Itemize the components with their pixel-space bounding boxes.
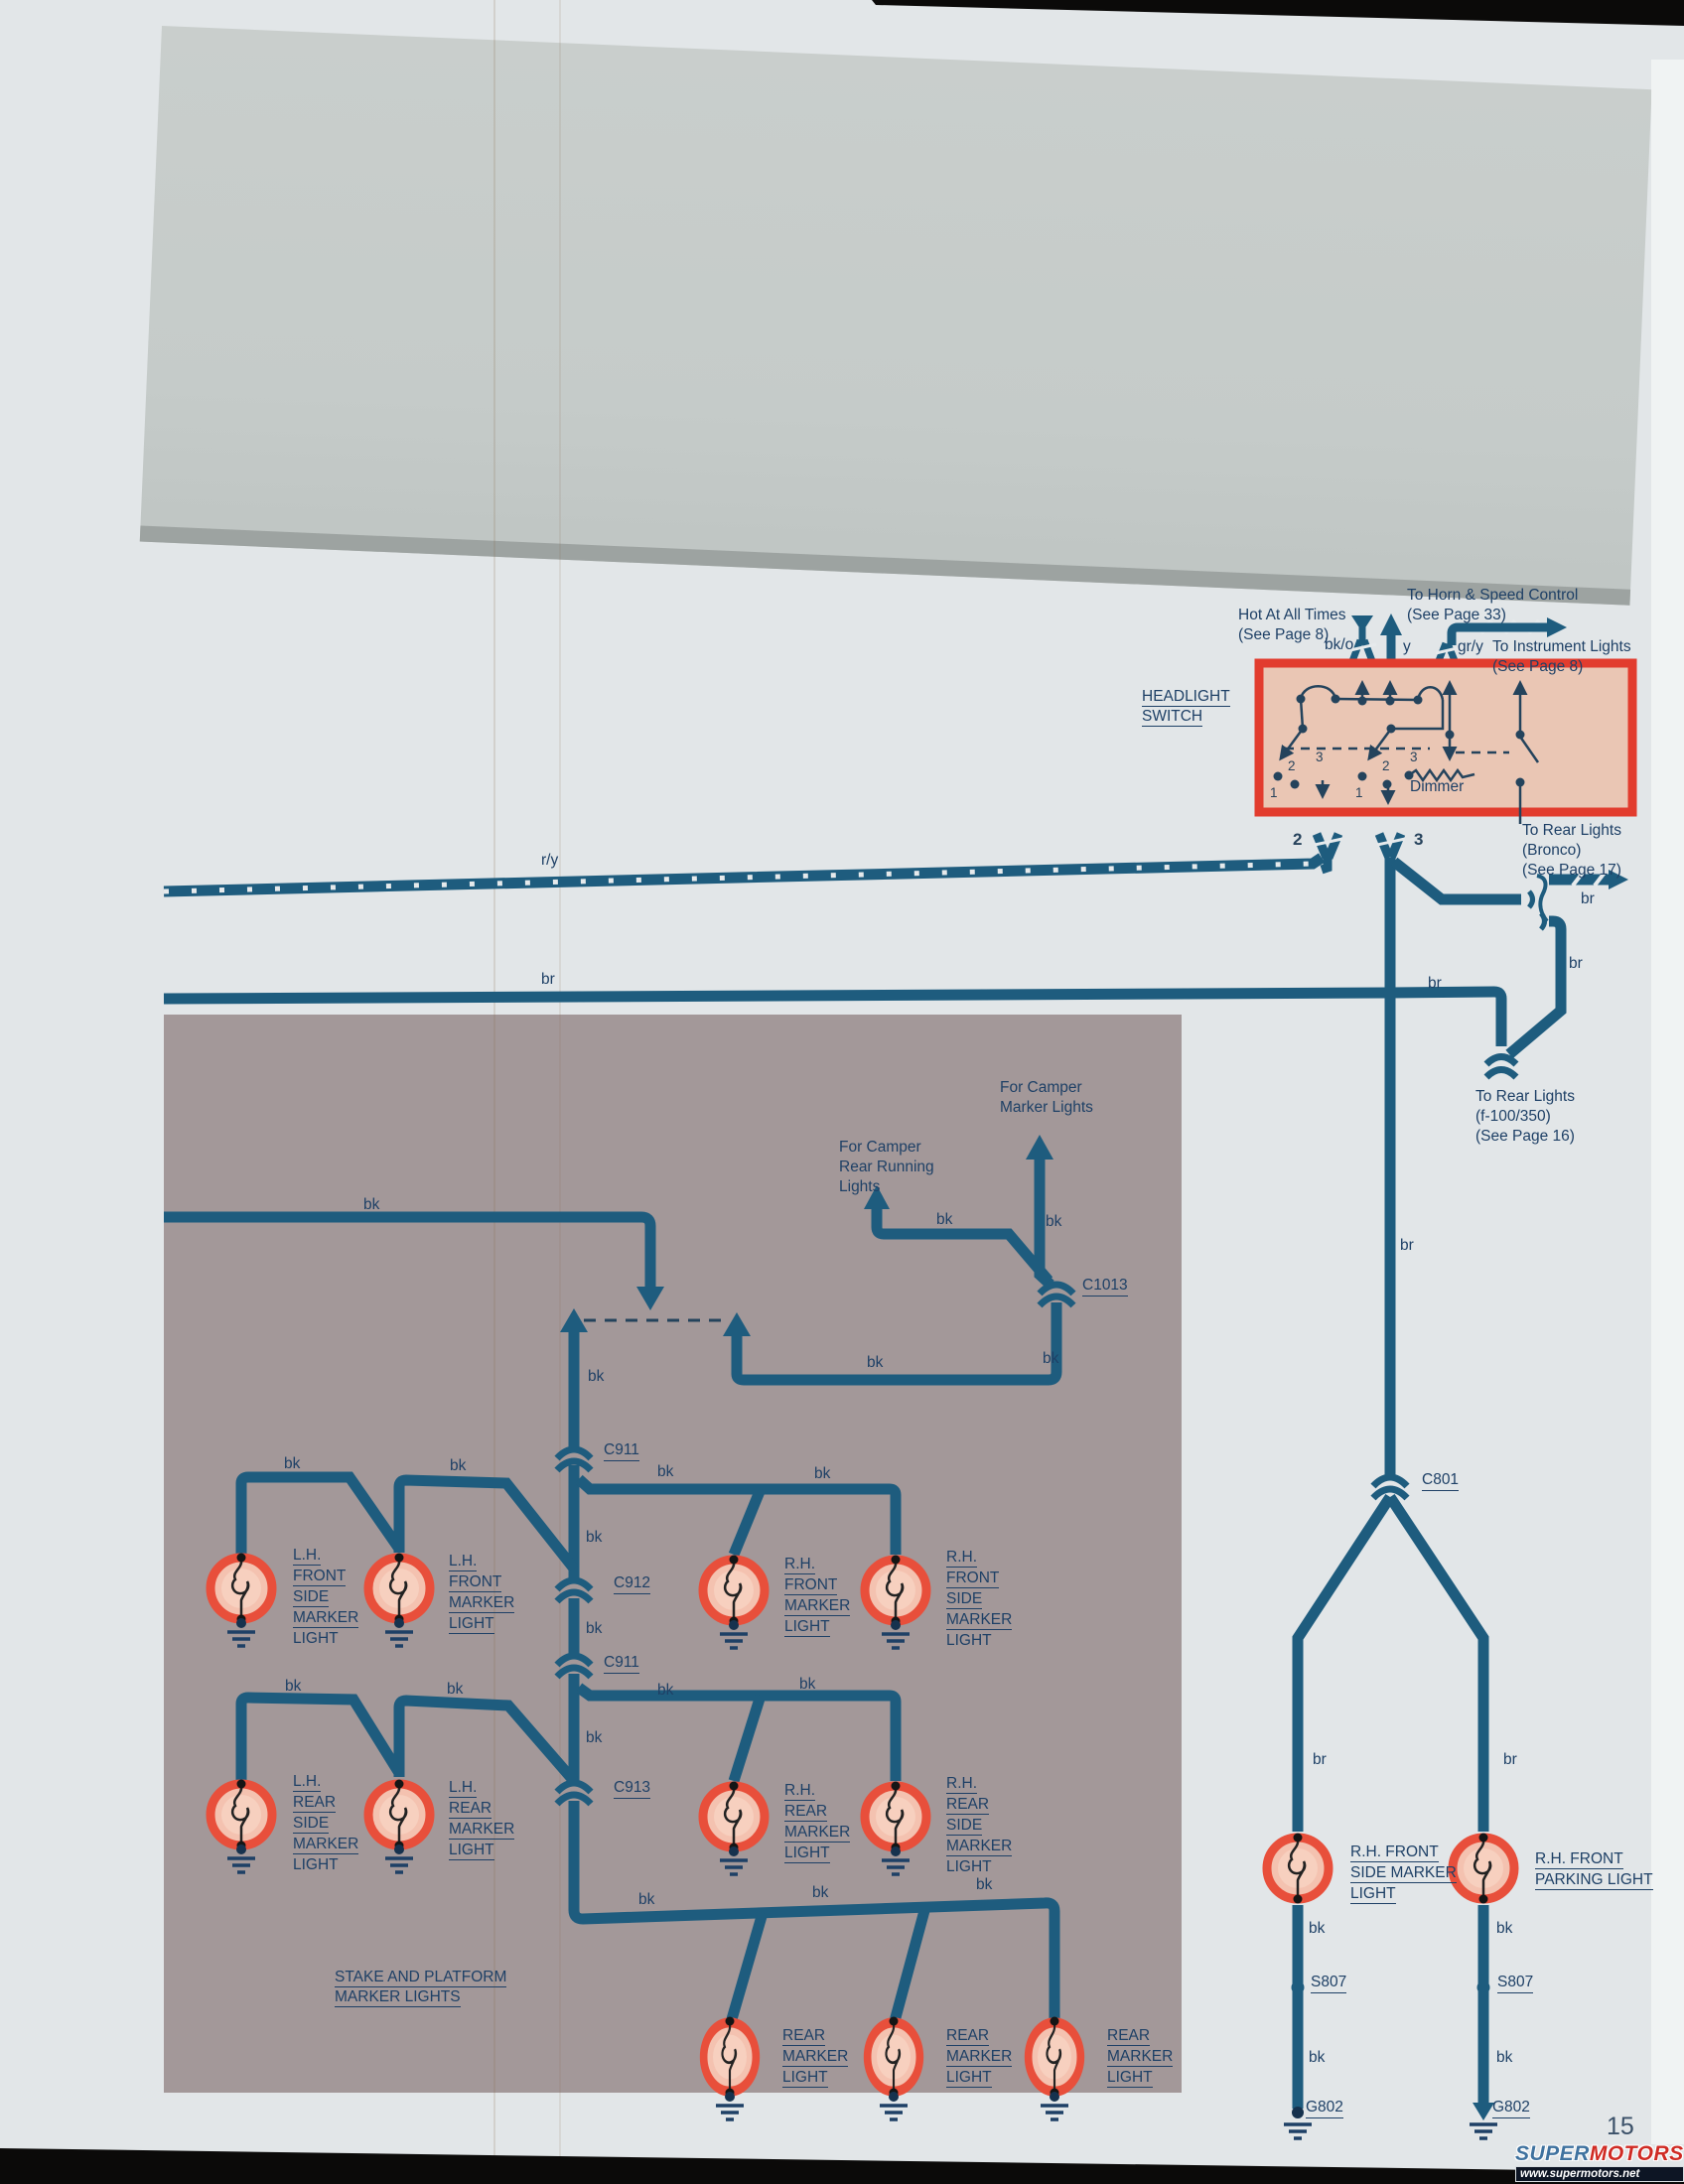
watermark-url: www.supermotors.net (1515, 2166, 1684, 2182)
note-for-camper-marker-lights: For CamperMarker Lights (1000, 1078, 1093, 1118)
wire-color-label: 1 (1355, 785, 1363, 800)
wire-color-label: br (1503, 1751, 1517, 1769)
wire-color-label: bk (867, 1354, 883, 1372)
wire-color-label: bk (657, 1682, 673, 1700)
watermark-brand: SUPERMOTORS (1515, 2142, 1684, 2166)
wire-color-label: 2 (1288, 758, 1296, 773)
wire-color-label: 3 (1414, 830, 1423, 850)
supermotors-watermark: SUPERMOTORS www.supermotors.net (1515, 2142, 1684, 2182)
diagram-labels: Hot At All Times(See Page 8)To Horn & Sp… (0, 0, 1684, 2184)
wire-color-label: bk (799, 1676, 815, 1694)
wire-color-label: bk (814, 1465, 830, 1483)
note-headlight-switch-title: HEADLIGHTSWITCH (1142, 687, 1230, 727)
wire-color-label: bk (1496, 1920, 1512, 1938)
rh-rear-marker-light-label: R.H.REARMARKERLIGHT (784, 1780, 850, 1863)
rear-marker-light-3-label: REARMARKERLIGHT (1107, 2025, 1173, 2088)
connector-label-g802: G802 (1492, 2099, 1530, 2118)
wire-color-label: gr/y (1458, 638, 1483, 656)
wire-color-label: bk (657, 1463, 673, 1481)
wire-color-label: bk (638, 1891, 654, 1909)
wire-color-label: 3 (1316, 750, 1324, 764)
wire-color-label: bk (936, 1211, 952, 1229)
wire-color-label: r/y (541, 852, 558, 870)
wire-color-label: 2 (1382, 758, 1390, 773)
wire-color-label: bk (1043, 1350, 1058, 1368)
wire-color-label: br (1400, 1237, 1414, 1255)
note-to-rear-lights-bronco: To Rear Lights(Bronco)(See Page 17) (1522, 821, 1621, 881)
wire-color-label: bk (586, 1729, 602, 1747)
lh-front-side-marker-light-label: L.H.FRONTSIDEMARKERLIGHT (293, 1545, 358, 1649)
wire-color-label: br (1581, 890, 1595, 908)
note-for-camper-rear-running-lights: For CamperRear RunningLights (839, 1138, 934, 1197)
wire-color-label: br (541, 971, 555, 989)
connector-label-s807: S807 (1497, 1974, 1533, 1993)
wire-color-label: y (1403, 638, 1411, 656)
wire-color-label: bk (363, 1196, 379, 1214)
wire-color-label: bk/o (1325, 636, 1353, 654)
note-to-rear-lights-f100: To Rear Lights(f-100/350)(See Page 16) (1475, 1087, 1575, 1147)
page-number: 15 (1607, 2113, 1634, 2141)
wire-color-label: br (1569, 955, 1583, 973)
lh-rear-side-marker-light-label: L.H.REARSIDEMARKERLIGHT (293, 1771, 358, 1875)
wire-color-label: bk (284, 1455, 300, 1473)
wire-color-label: bk (588, 1368, 604, 1386)
wire-color-label: bk (1309, 2049, 1325, 2067)
wire-color-label: 2 (1293, 830, 1302, 850)
rh-front-side-marker-light-panel-label: R.H.FRONTSIDEMARKERLIGHT (946, 1547, 1012, 1651)
rh-front-marker-light-label: R.H.FRONTMARKERLIGHT (784, 1554, 850, 1637)
wire-color-label: bk (812, 1884, 828, 1902)
connector-label-s807: S807 (1311, 1974, 1346, 1993)
connector-label-c912: C912 (614, 1574, 650, 1594)
note-to-instrument-lights: To Instrument Lights(See Page 8) (1492, 637, 1631, 677)
rh-rear-side-marker-light-label: R.H.REARSIDEMARKERLIGHT (946, 1773, 1012, 1877)
note-stake-and-platform: STAKE AND PLATFORMMARKER LIGHTS (335, 1968, 506, 2007)
connector-label-c911: C911 (604, 1654, 639, 1674)
wire-color-label: bk (1046, 1213, 1061, 1231)
wire-color-label: bk (285, 1678, 301, 1696)
connector-label-g802: G802 (1306, 2099, 1343, 2118)
lh-front-marker-light-label: L.H.FRONTMARKERLIGHT (449, 1551, 514, 1634)
scanned-wiring-diagram-page: Hot At All Times(See Page 8)To Horn & Sp… (0, 0, 1684, 2184)
wire-color-label: bk (1309, 1920, 1325, 1938)
connector-label-c911: C911 (604, 1441, 639, 1461)
wire-color-label: bk (447, 1681, 463, 1699)
connector-label-c801: C801 (1422, 1471, 1459, 1491)
wire-color-label: bk (586, 1529, 602, 1547)
connector-label-c913: C913 (614, 1779, 650, 1799)
wire-color-label: bk (586, 1620, 602, 1638)
wire-color-label: 1 (1270, 785, 1278, 800)
rear-marker-light-1-label: REARMARKERLIGHT (782, 2025, 848, 2088)
wire-color-label: bk (450, 1457, 466, 1475)
wire-color-label: br (1428, 975, 1442, 993)
rear-marker-light-2-label: REARMARKERLIGHT (946, 2025, 1012, 2088)
rh-front-side-marker-light-label: R.H. FRONTSIDE MARKERLIGHT (1350, 1842, 1457, 1904)
rh-front-parking-light-label: R.H. FRONTPARKING LIGHT (1535, 1848, 1653, 1890)
wire-color-label: bk (976, 1876, 992, 1894)
wire-color-label: 3 (1410, 750, 1418, 764)
lh-rear-marker-light-label: L.H.REARMARKERLIGHT (449, 1777, 514, 1860)
wire-color-label: bk (1496, 2049, 1512, 2067)
wire-color-label: Dimmer (1410, 778, 1464, 796)
connector-label-c1013: C1013 (1082, 1277, 1128, 1297)
note-to-horn-speed-control: To Horn & Speed Control(See Page 33) (1407, 586, 1578, 625)
wire-color-label: br (1313, 1751, 1327, 1769)
